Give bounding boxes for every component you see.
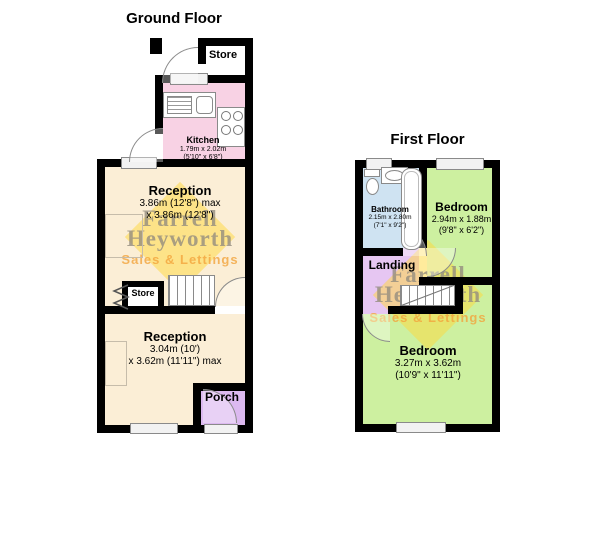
bathroom-dims-2: (7'1" x 9'2") [361,222,419,230]
first-floor-title: First Floor [355,131,500,148]
wall [150,38,162,54]
bedroom1-dims-1: 2.94m x 1.88m [419,214,504,225]
wall [455,277,463,314]
reception1-dims-2: x 3.86m (12'8") [110,210,250,222]
kitchen-sink-icon [196,96,213,114]
kitchen-dims-2: (5'10" x 6'8") [165,154,241,162]
room-label-kitchen: Kitchen 1.79m x 2.02m (5'10" x 6'8") [165,135,241,162]
bedroom1-label: Bedroom [419,200,504,214]
staircase [168,275,215,306]
window [436,158,484,170]
wall [355,160,363,432]
bedroom2-dims-1: 3.27m x 3.62m [363,358,493,370]
stair-direction-line [400,285,455,306]
wall [97,159,105,433]
reception2-dims-1: 3.04m (10') [105,344,245,356]
door-arc [129,128,163,162]
room-label-reception-2: Reception 3.04m (10') x 3.62m (11'11") m… [105,329,245,368]
bathroom-label: Bathroom [361,205,419,214]
window [130,423,178,434]
burner-icon [221,111,231,121]
reception1-label: Reception [110,183,250,198]
kitchen-label: Kitchen [165,135,241,146]
room-label-landing: Landing [363,258,421,272]
bathroom-dims-1: 2.15m x 2.80m [361,214,419,222]
room-label-bedroom-1: Bedroom 2.94m x 1.88m (9'8" x 6'2") [419,200,504,235]
bedroom2-label: Bedroom [363,343,493,358]
burner-icon [233,111,243,121]
floorplan-canvas: Ground Floor Farrell Heyworth Sales & Le… [0,0,600,533]
wall [245,38,253,167]
room-label-reception-1: Reception 3.86m (12'8") max x 3.86m (12'… [110,183,250,222]
wall [155,75,163,134]
door-arc [162,47,198,83]
window [396,422,446,433]
reception2-label: Reception [105,329,245,344]
room-label-porch: Porch [199,390,245,404]
burner-icon [221,125,231,135]
porch-label: Porch [199,390,245,404]
drainer-icon [167,96,192,114]
bedroom1-dims-2: (9'8" x 6'2") [419,225,504,236]
bifold-door-icon [114,285,128,309]
kitchen-dims-1: 1.79m x 2.02m [165,146,241,154]
reception2-dims-2: x 3.62m (11'11") max [105,356,245,368]
room-label-bathroom: Bathroom 2.15m x 2.80m (7'1" x 9'2") [361,205,419,230]
bedroom2-dims-2: (10'9" x 11'11") [363,370,493,382]
toilet-icon [366,178,379,195]
store-top-label: Store [202,49,244,62]
reception1-dims-1: 3.86m (12'8") max [110,198,250,210]
window [204,424,238,434]
ground-floor-title: Ground Floor [99,10,249,27]
room-label-bedroom-2: Bedroom 3.27m x 3.62m (10'9" x 11'11") [363,343,493,382]
toilet-cistern-icon [364,169,380,177]
room-label-store-top: Store [202,49,244,62]
room-label-store-understairs: Store [127,288,159,299]
wall [355,248,403,256]
store-understairs-label: Store [127,288,159,299]
burner-icon [233,125,243,135]
landing-label: Landing [363,258,421,272]
wall [388,306,462,314]
